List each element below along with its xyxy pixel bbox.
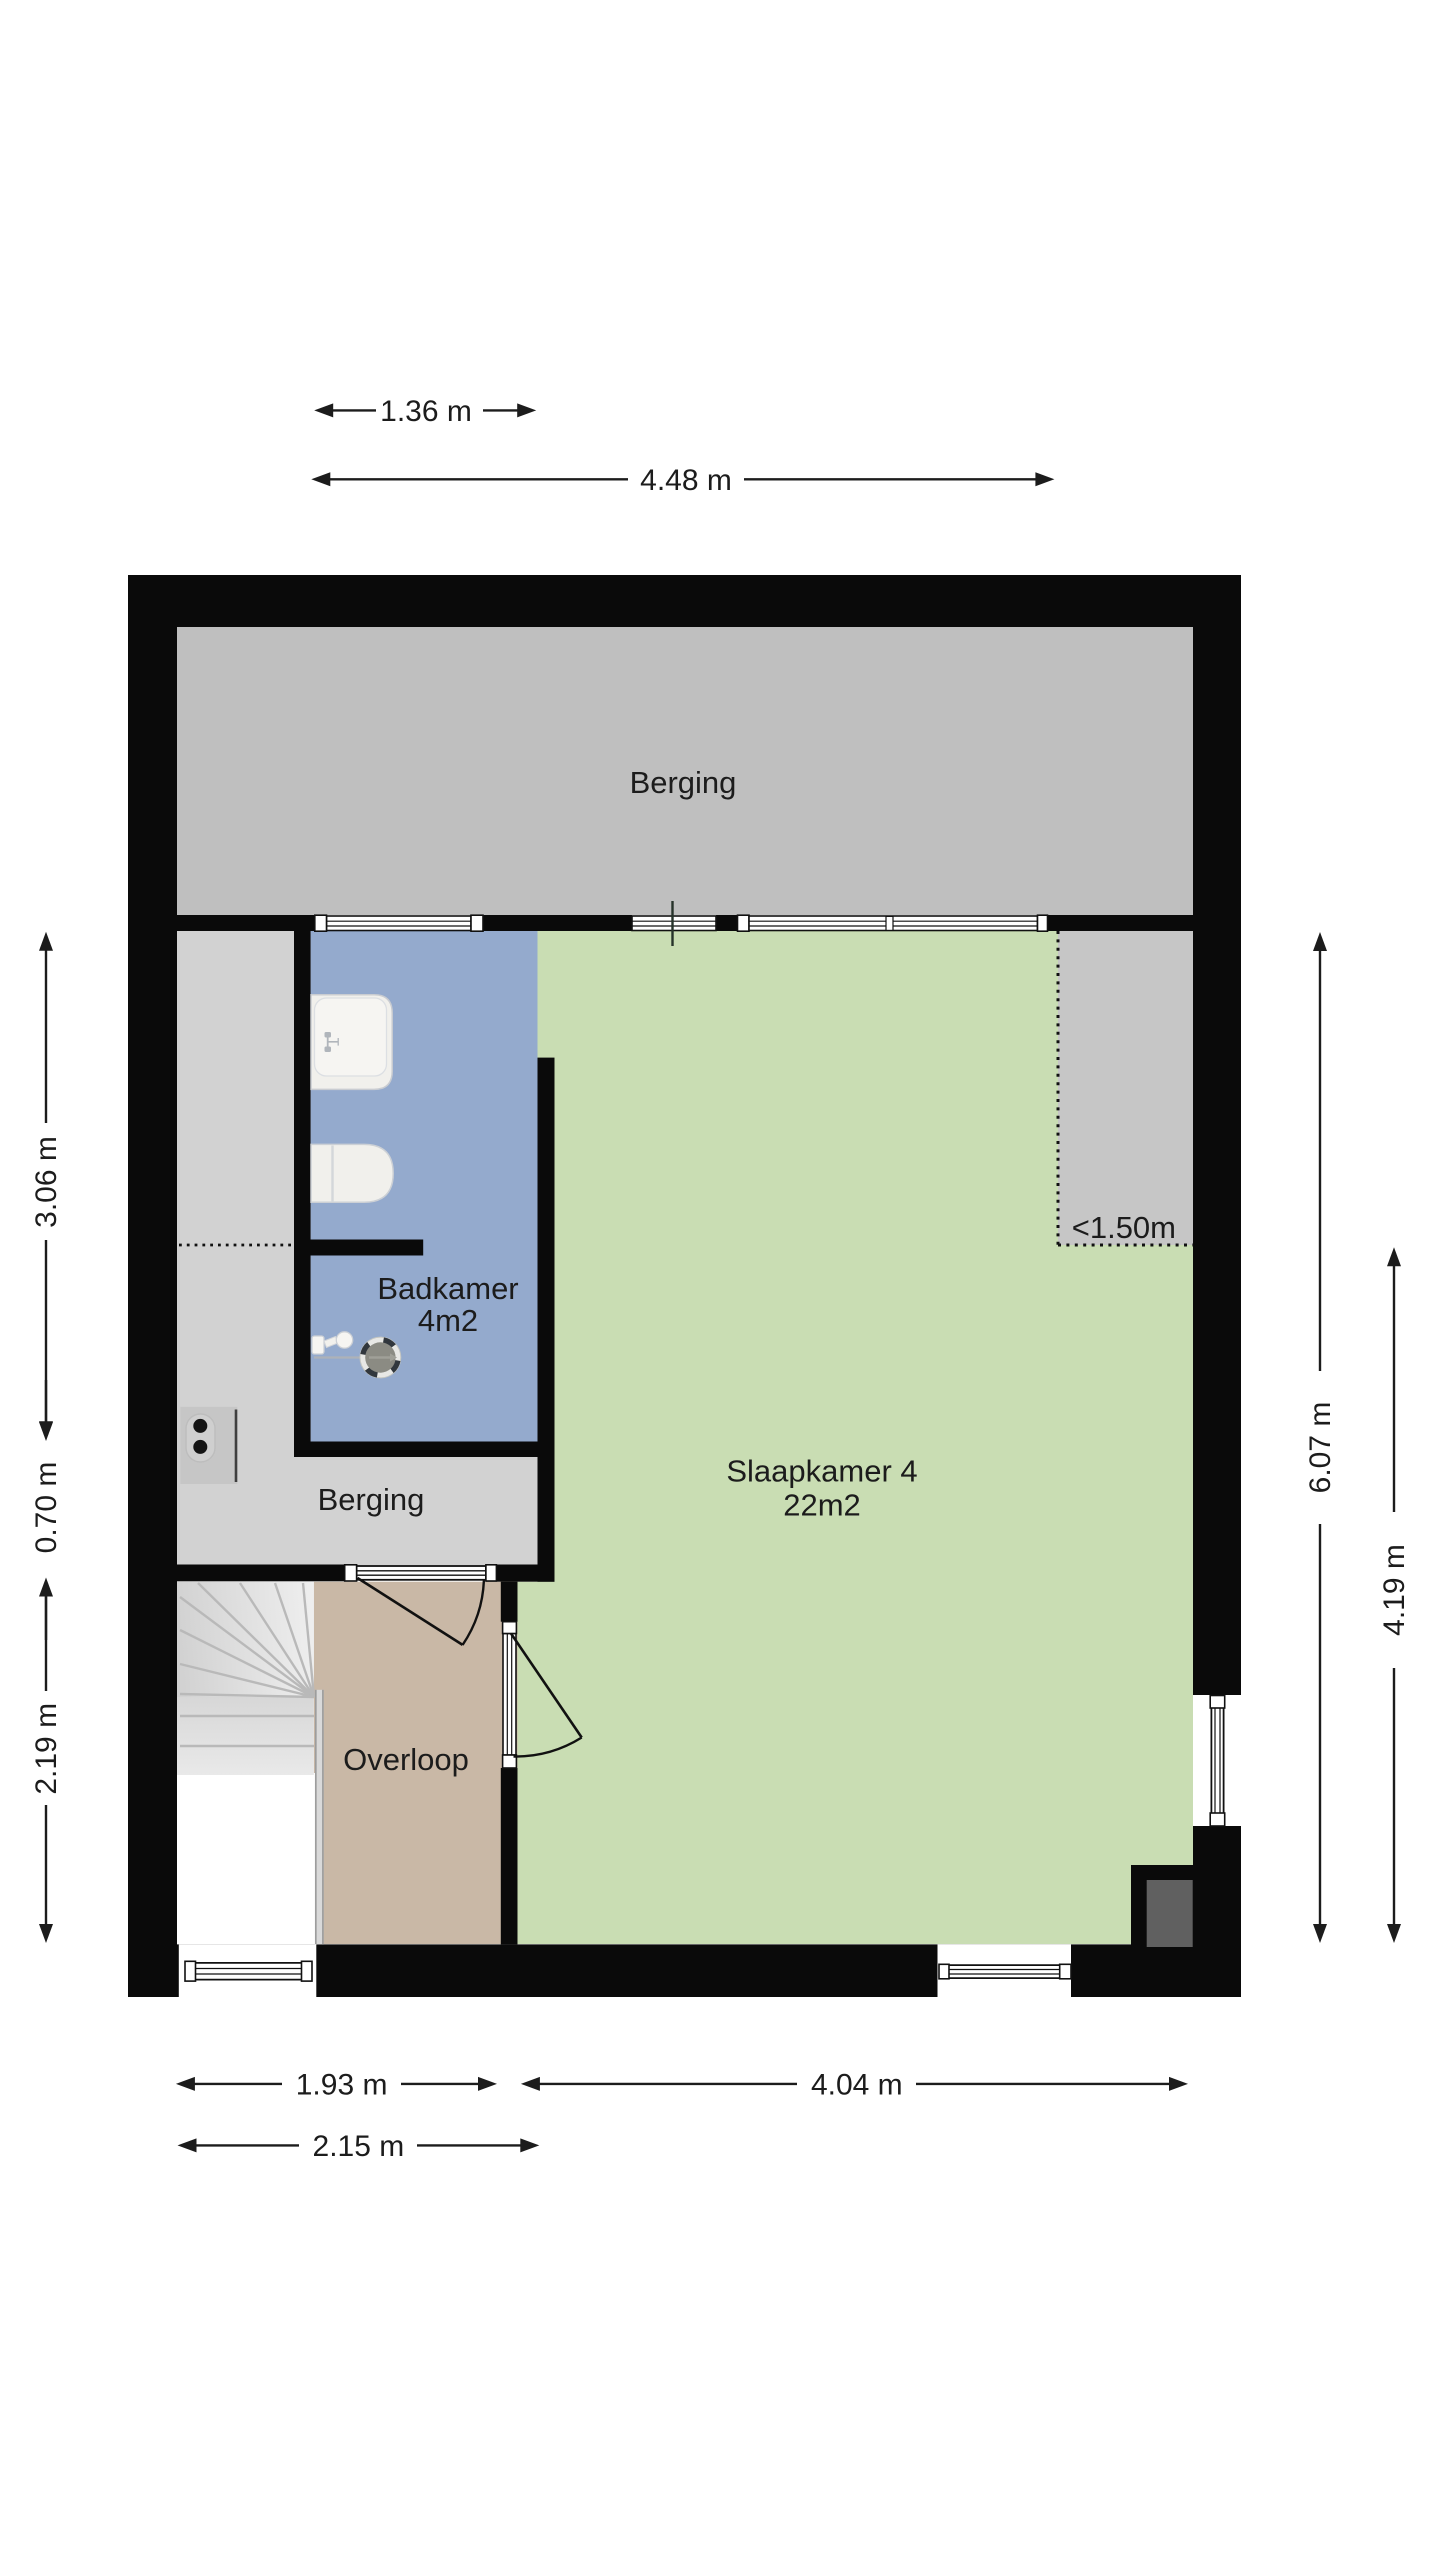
svg-text:Berging: Berging [318, 1482, 425, 1517]
svg-text:Slaapkamer 4: Slaapkamer 4 [726, 1454, 917, 1489]
svg-text:4.48 m: 4.48 m [640, 464, 732, 497]
svg-text:22m2: 22m2 [783, 1488, 861, 1523]
svg-text:0.70 m: 0.70 m [30, 1462, 63, 1554]
svg-text:Overloop: Overloop [343, 1742, 469, 1777]
svg-text:4.19 m: 4.19 m [1378, 1544, 1411, 1636]
svg-text:3.06 m: 3.06 m [30, 1136, 63, 1228]
svg-text:Berging: Berging [630, 765, 737, 800]
svg-text:2.19 m: 2.19 m [30, 1703, 63, 1795]
svg-text:1.93 m: 1.93 m [296, 2069, 388, 2102]
svg-text:6.07 m: 6.07 m [1304, 1402, 1337, 1494]
svg-text:Badkamer: Badkamer [377, 1271, 518, 1306]
svg-text:4.04 m: 4.04 m [811, 2069, 903, 2102]
svg-text:2.15 m: 2.15 m [313, 2130, 405, 2163]
svg-text:1.36 m: 1.36 m [380, 395, 472, 428]
svg-text:<1.50m: <1.50m [1072, 1210, 1176, 1245]
svg-text:4m2: 4m2 [418, 1303, 478, 1338]
